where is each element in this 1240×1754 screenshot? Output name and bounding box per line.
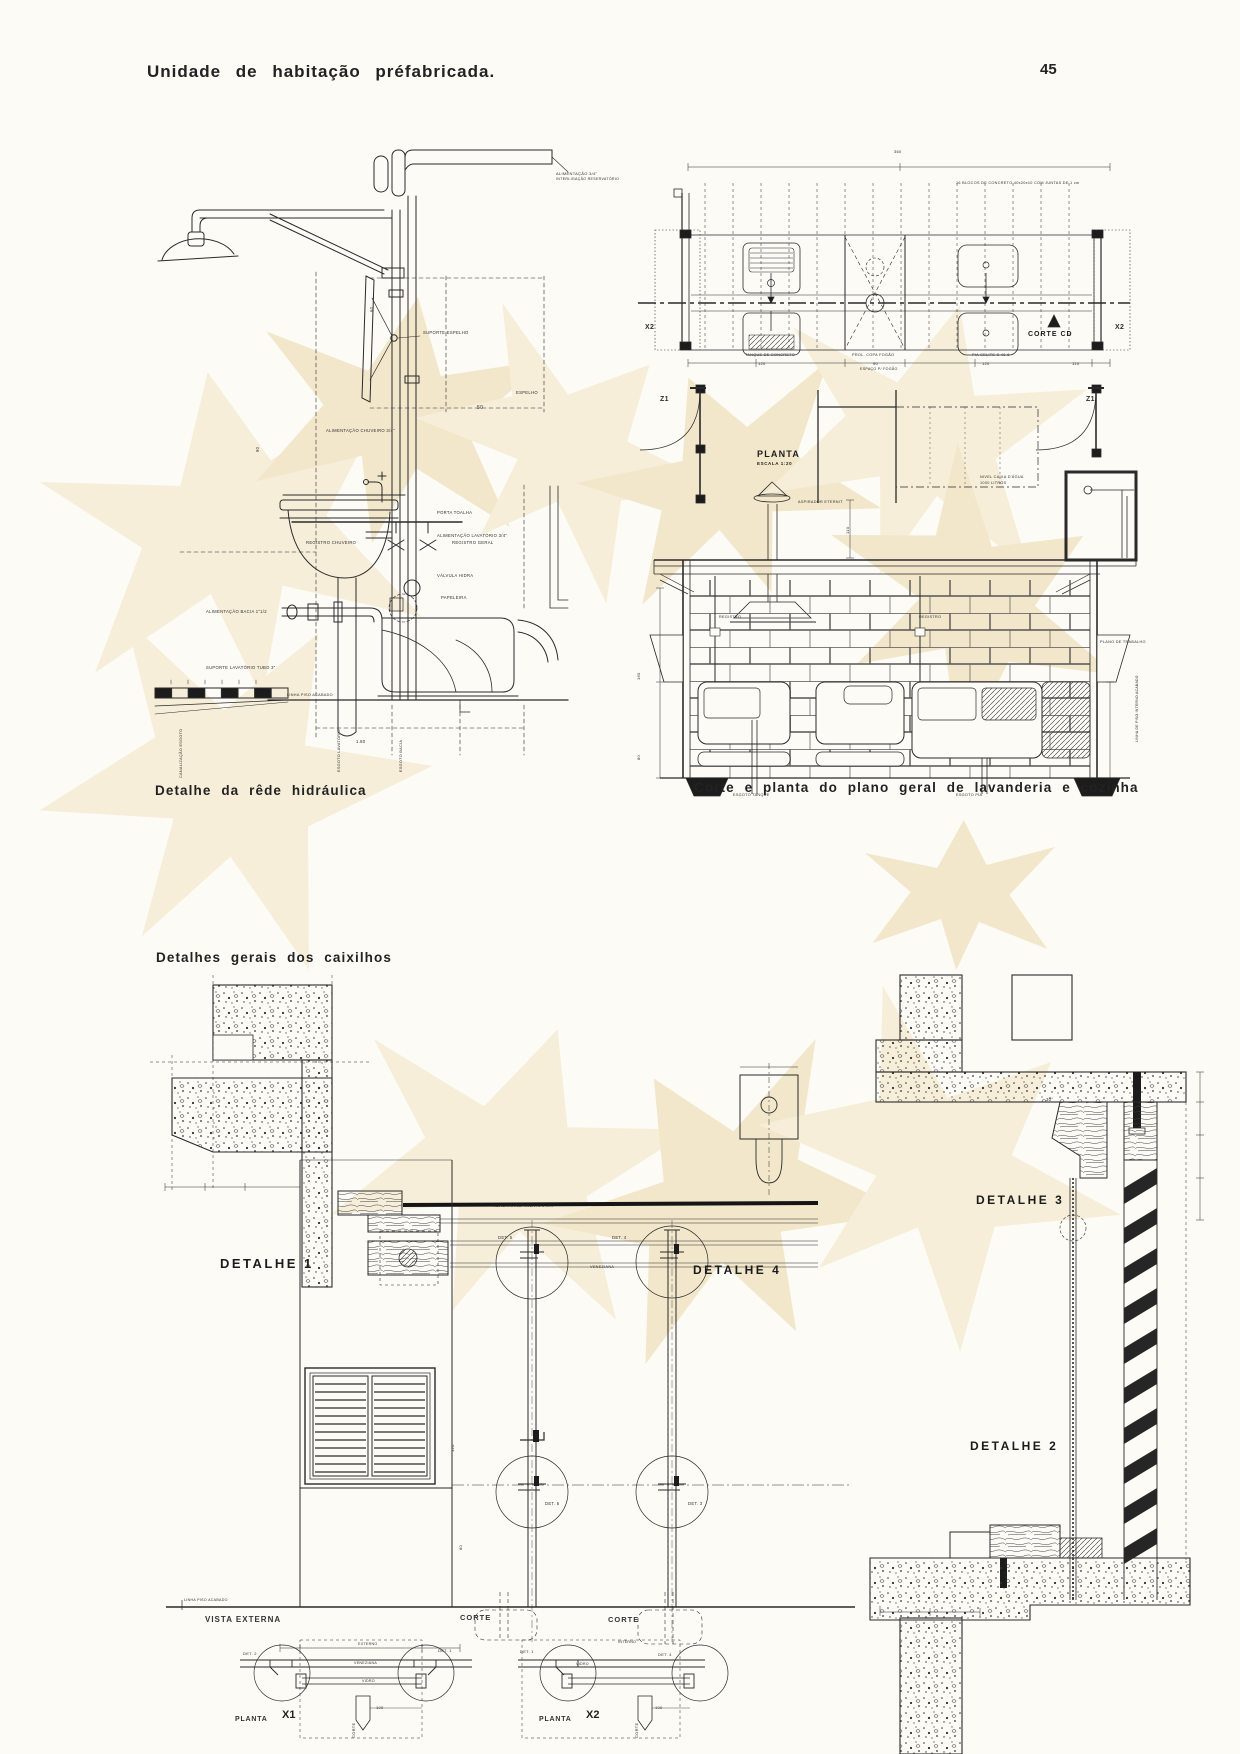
annotation: REGISTRO xyxy=(719,616,741,620)
annotation: Z1 xyxy=(660,396,669,403)
window-elevation-and-plans-drawing xyxy=(160,1140,860,1754)
annotation: 120 xyxy=(982,362,990,366)
planta-x2-word: PLANTA xyxy=(539,1716,572,1723)
annotation: PORTA TOALHA xyxy=(437,511,472,515)
detalhe-4-label: DETALHE 4 xyxy=(693,1264,781,1276)
annotation: ALIMENTAÇÃO LAVATÓRIO 3/4" xyxy=(437,534,507,538)
detalhe-3-label: DETALHE 3 xyxy=(976,1194,1064,1206)
planta-x1-num: X1 xyxy=(282,1710,295,1721)
annotation: DET. 5 xyxy=(498,1236,512,1240)
window-detail-3-2-drawing xyxy=(850,960,1240,1754)
annotation: X2 xyxy=(645,324,654,331)
annotation: ALIMENTAÇÃO 3/4" xyxy=(556,172,597,176)
corte-cd-label: CORTE CD xyxy=(1028,331,1073,338)
annotation: 90 xyxy=(256,447,260,452)
annotation: ALIMENTAÇÃO CHUVEIRO 3/4" xyxy=(326,429,395,433)
annotation: VÁLVULA HIDRA xyxy=(437,574,473,578)
annotation: 110 xyxy=(1072,362,1079,366)
annotation: REGISTRO GERAL xyxy=(452,541,493,545)
detalhe-1-label: DETALHE 1 xyxy=(220,1257,314,1270)
laundry-plan-drawing xyxy=(630,145,1140,505)
annotation: 1.80 xyxy=(356,740,365,744)
annotation: CANALIZAÇÃO ESGOTO xyxy=(180,729,184,778)
annotation: 30° xyxy=(1046,1098,1053,1102)
scanned-magazine-page: Unidade de habitação préfabricada. 45 xyxy=(0,0,1240,1754)
plan-scale: ESCALA 1:20 xyxy=(757,462,792,467)
annotation: ESGOTO PIA xyxy=(956,794,982,798)
annotation: 120 xyxy=(451,1444,455,1452)
annotation: TANQUE DE CONCRETO xyxy=(745,354,795,358)
annotation: EXTERNO xyxy=(358,1643,377,1647)
annotation: ESPELHO xyxy=(516,391,538,395)
annotation: CORTE xyxy=(352,1723,356,1738)
annotation: DET. 4 xyxy=(612,1236,626,1240)
annotation: 50 xyxy=(477,406,483,411)
annotation: PIA CELITE S 40-6 xyxy=(972,354,1010,358)
annotation: 60 xyxy=(370,307,374,312)
annotation: CORTE xyxy=(635,1723,639,1738)
vista-externa-label: VISTA EXTERNA xyxy=(205,1616,281,1624)
corte-left-label: CORTE xyxy=(460,1614,491,1622)
planta-x1-word: PLANTA xyxy=(235,1716,268,1723)
annotation: DET. 1 xyxy=(438,1649,452,1653)
plan-title: PLANTA xyxy=(757,450,800,459)
annotation: DET. 1 xyxy=(520,1650,534,1654)
annotation: 16 BLOCOS DE CONCRETO 40x20x10 COM JUNTA… xyxy=(956,182,1079,186)
annotation: ALIMENTAÇÃO BACIA 1"1/2 xyxy=(206,610,267,614)
annotation: INTERLIGAÇÃO RESERVATÓRIO xyxy=(556,178,619,182)
annotation: 1000 LITROS xyxy=(980,482,1007,486)
annotation: 360 xyxy=(894,150,902,154)
annotation: 80 xyxy=(637,755,641,760)
annotation: DET. 5 xyxy=(545,1502,559,1506)
page-title: Unidade de habitação préfabricada. xyxy=(147,63,495,80)
annotation: VENEZIANA xyxy=(354,1662,377,1666)
annotation: SUPORTE LAVATÓRIO TUBO 3" xyxy=(206,666,276,670)
annotation: REGISTRO xyxy=(919,616,941,620)
annotation: PROL. COPA FOGÃO xyxy=(852,354,894,358)
corte-right-label: CORTE xyxy=(608,1616,639,1624)
annotation: 80 xyxy=(459,1545,463,1550)
caixilhos-heading: Detalhes gerais dos caixilhos xyxy=(156,951,392,965)
annotation: X2 xyxy=(1115,324,1124,331)
annotation: VIDRO TRANSPARENTE 3 mm xyxy=(492,1205,553,1209)
annotation: Z1 xyxy=(1086,396,1095,403)
page-number: 45 xyxy=(1040,62,1057,77)
annotation: VIDRO xyxy=(362,1680,375,1684)
annotation: LINHA PISO ACABADO xyxy=(287,694,333,698)
annotation: VIDRO xyxy=(576,1663,589,1667)
annotation: LINHA PISO ACABADO xyxy=(184,1599,228,1603)
annotation: 100 xyxy=(376,1706,384,1710)
annotation: 160 xyxy=(637,672,641,680)
annotation: VENEZIANA xyxy=(590,1266,614,1270)
annotation: NIVEL CAIXA D'ÁGUA xyxy=(980,476,1024,480)
annotation: 120 xyxy=(758,362,766,366)
annotation: DET. 3 xyxy=(688,1502,702,1506)
annotation: INTERNO xyxy=(618,1641,636,1645)
annotation: 90 xyxy=(873,362,878,366)
annotation: 100 xyxy=(655,1706,663,1710)
annotation: ESGOTO TANQUE xyxy=(733,794,770,798)
laundry-section-drawing xyxy=(630,460,1140,805)
annotation: SUPORTE ESPELHO xyxy=(423,331,469,335)
annotation: 110 xyxy=(846,527,850,534)
annotation: ESGOTO BACIA xyxy=(400,740,404,772)
planta-x2-num: X2 xyxy=(586,1710,599,1721)
annotation: PLANO DE TRABALHO xyxy=(1100,641,1146,645)
annotation: DET. 4 xyxy=(658,1653,672,1657)
annotation: REGISTRO CHUVEIRO xyxy=(306,541,356,545)
hydraulic-caption: Detalhe da rêde hidráulica xyxy=(155,784,367,798)
annotation: ESPAÇO P/ FOGÃO xyxy=(860,368,898,372)
annotation: DET. 2 xyxy=(243,1652,257,1656)
hydraulic-detail-drawing xyxy=(120,140,600,760)
annotation: ASPIRADOR ETERNIT xyxy=(798,501,843,505)
annotation: ESGOTO LAVATÓRIO xyxy=(338,729,342,772)
detalhe-2-label: DETALHE 2 xyxy=(970,1440,1058,1452)
annotation: LINHA DE PISO INTERNO ACABADO xyxy=(1136,675,1139,742)
watermark-star xyxy=(865,820,1055,970)
annotation: PAPELEIRA xyxy=(441,596,467,600)
